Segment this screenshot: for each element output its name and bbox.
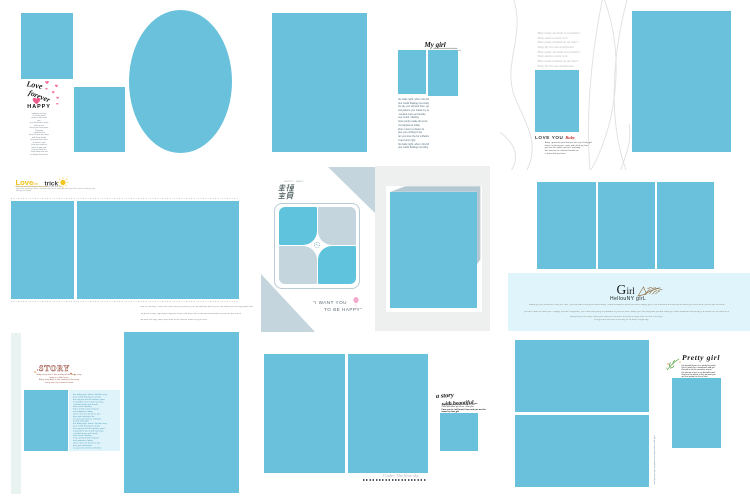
svg-text:G: G <box>617 282 627 297</box>
svg-text:My girl: My girl <box>424 41 446 49</box>
svg-text:HellouNY gIrL: HellouNY gIrL <box>610 296 646 302</box>
svg-text:can you love the for a lifetim: can you love the for a lifetime <box>73 446 102 449</box>
svg-text:a story: a story <box>436 391 454 399</box>
